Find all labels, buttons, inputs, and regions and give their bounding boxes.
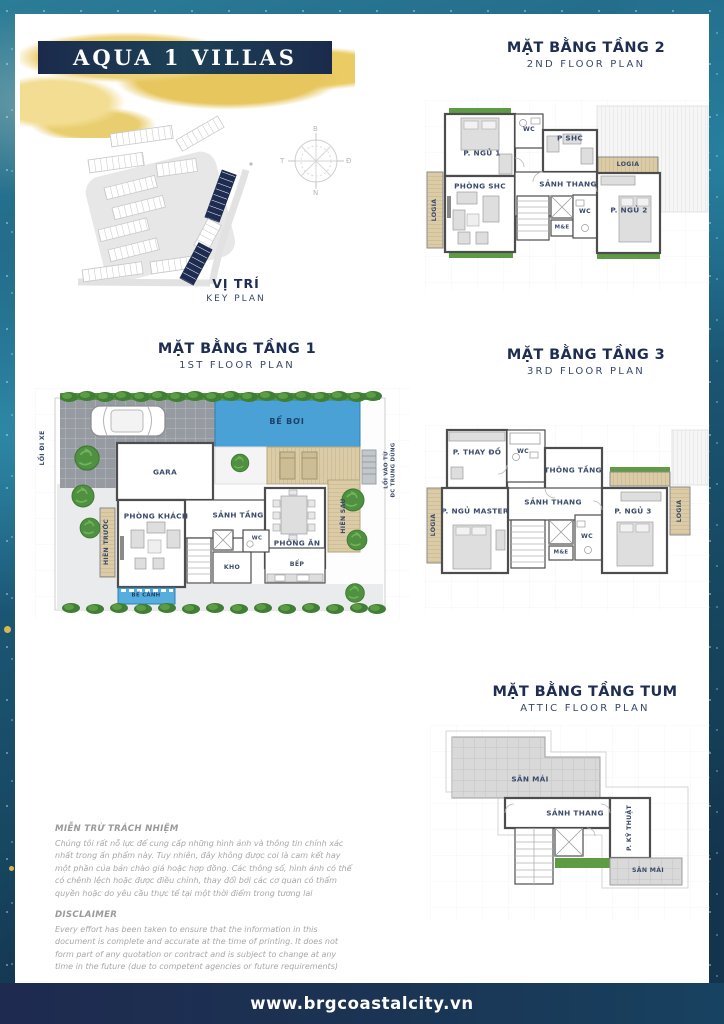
room-label: LOGIA — [431, 514, 437, 537]
floor1-plan-drawing — [35, 388, 410, 620]
room-label: WC — [252, 536, 263, 541]
room-label: SẢNH THANG — [546, 809, 603, 816]
room-label: P. NGỦ MASTER — [441, 507, 509, 514]
attic-plan-drawing — [430, 725, 710, 920]
page-title: AQUA 1 VILLAS — [73, 45, 297, 70]
floor2-title-en: 2ND FLOOR PLAN — [451, 59, 721, 70]
site-label: LỐI ĐI XE — [40, 431, 46, 466]
key-plan-title-en: KEY PLAN — [206, 294, 265, 304]
floor1-plan: BỂ BƠI GARA PHÒNG KHÁCH HIÊN TRƯỚC SẢNH … — [35, 388, 410, 620]
pool-label: BỂ BƠI — [269, 418, 304, 426]
room-label: HIÊN SAU — [341, 498, 347, 534]
room-label: PHÒNG SHC — [454, 182, 506, 189]
footer-bar: www.brgcoastalcity.vn — [0, 983, 724, 1024]
compass-west-label: T — [280, 157, 284, 165]
key-plan-title: VỊ TRÍ KEY PLAN — [206, 276, 265, 304]
room-label: SÂN MÁI — [632, 868, 664, 874]
room-label: SẢNH TẦNG — [212, 511, 263, 518]
key-plan-section: B Đ N T VỊ TRÍ KEY PLAN — [55, 112, 355, 312]
room-label: PHÒNG KHÁCH — [124, 512, 188, 519]
compass-east-label: Đ — [346, 157, 351, 165]
title-banner: AQUA 1 VILLAS — [38, 41, 332, 74]
room-label: M&E — [554, 550, 569, 555]
room-label: P. THAY ĐỒ — [453, 448, 502, 455]
room-label: P SHC — [557, 134, 583, 141]
footer-url: www.brgcoastalcity.vn — [250, 994, 473, 1013]
floor3-title-en: 3RD FLOOR PLAN — [451, 366, 721, 377]
room-label: SẢNH THANG — [539, 180, 596, 187]
room-label: WC — [579, 209, 591, 215]
room-label: M&E — [555, 225, 570, 230]
floor3-title: MẶT BẰNG TẦNG 3 3RD FLOOR PLAN — [451, 347, 721, 377]
room-label: THÔNG TẦNG — [544, 466, 602, 473]
entrance-label-line1: LỐI VÀO TỪ — [385, 451, 390, 489]
key-plan-title-vn: VỊ TRÍ — [206, 276, 265, 291]
disclaimer-heading-en: DISCLAIMER — [55, 910, 355, 920]
compass-north-label: B — [313, 125, 318, 133]
room-label: GARA — [153, 468, 177, 475]
disclaimer-heading-vn: MIỄN TRỪ TRÁCH NHIỆM — [55, 824, 355, 834]
floor3-title-vn: MẶT BẰNG TẦNG 3 — [451, 347, 721, 363]
entrance-label-line2: ĐC TRUNG DŨNG — [392, 442, 397, 497]
room-label: P. NGỦ 3 — [614, 507, 651, 514]
room-label: WC — [581, 534, 593, 540]
attic-title-en: ATTIC FLOOR PLAN — [450, 703, 720, 714]
room-label: HIÊN TRƯỚC — [104, 519, 110, 565]
room-label: PHÒNG ĂN — [274, 539, 320, 546]
attic-plan: SÂN MÁI SẢNH THANG P. KỸ THUẬT SÂN MÁI — [430, 725, 710, 920]
compass-south-label: N — [313, 189, 318, 197]
room-label: BẾP — [290, 562, 304, 568]
floor1-title-vn: MẶT BẰNG TẦNG 1 — [102, 341, 372, 357]
floor2-plan: P. NGỦ 1 WC P SHC LOGIA LOGIA PHÒNG SHC … — [425, 100, 710, 290]
room-label: SẢNH THANG — [524, 498, 581, 505]
room-label: WC — [523, 127, 535, 133]
compass-drawing — [288, 133, 344, 189]
floor1-title-en: 1ST FLOOR PLAN — [102, 360, 372, 371]
room-label: P. NGỦ 1 — [463, 149, 500, 156]
room-label: WC — [517, 449, 529, 455]
disclaimer-body-vn: Chúng tôi rất nỗ lực để cung cấp những h… — [55, 838, 355, 900]
floor3-plan: P. THAY ĐỒ WC THÔNG TẦNG SẢNH THANG P. N… — [425, 425, 710, 610]
gold-fleck — [4, 626, 11, 633]
room-label: SÂN MÁI — [511, 775, 548, 782]
room-label: P. NGỦ 2 — [610, 206, 647, 213]
room-label: BỂ CẢNH — [132, 593, 161, 598]
compass-rose: B Đ N T — [288, 133, 344, 189]
floor2-title-vn: MẶT BẰNG TẦNG 2 — [451, 40, 721, 56]
car-icon — [91, 406, 165, 436]
attic-title-vn: MẶT BẰNG TẦNG TUM — [450, 684, 720, 700]
floor1-title: MẶT BẰNG TẦNG 1 1ST FLOOR PLAN — [102, 341, 372, 371]
gold-fleck — [9, 866, 14, 871]
floor2-title: MẶT BẰNG TẦNG 2 2ND FLOOR PLAN — [451, 40, 721, 70]
room-label: LOGIA — [677, 500, 683, 523]
key-plan-map — [60, 112, 290, 297]
room-label: LOGIA — [617, 162, 640, 168]
disclaimer-block: MIỄN TRỪ TRÁCH NHIỆM Chúng tôi rất nỗ lự… — [55, 824, 355, 984]
room-label: P. KỸ THUẬT — [627, 805, 633, 851]
floor2-plan-drawing — [425, 100, 710, 290]
room-label: LOGIA — [432, 199, 438, 222]
brochure-page: AQUA 1 VILLAS — [0, 0, 724, 1024]
site-label-entrance: LỐI VÀO TỪ ĐC TRUNG DŨNG — [385, 442, 398, 497]
attic-title: MẶT BẰNG TẦNG TUM ATTIC FLOOR PLAN — [450, 684, 720, 714]
room-label: KHO — [224, 565, 240, 571]
disclaimer-body-en: Every effort has been taken to ensure th… — [55, 924, 355, 974]
